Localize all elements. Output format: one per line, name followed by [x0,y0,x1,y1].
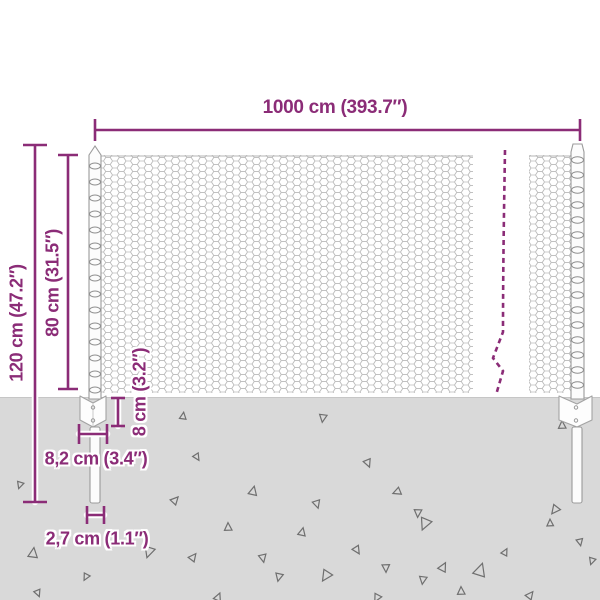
right-post-spike [572,427,582,503]
fence-dimension-diagram: 1000 cm (393.7″) 120 cm (47.2″) 80 cm (3… [0,0,600,600]
diagram-canvas [0,0,600,600]
dim-spike-width-label: 2,7 cm (1.1″) [46,529,149,550]
mesh-panel-left [95,155,473,393]
dim-total-height-label: 120 cm (47.2″) [7,264,28,382]
dim-plate-height-label: 8 cm (3.2″) [130,348,151,436]
dim-total-width [95,119,580,141]
dim-plate-width-label: 8,2 cm (3.4″) [45,449,148,470]
dim-total-width-label: 1000 cm (393.7″) [263,97,408,119]
dim-mesh-height-label: 80 cm (31.5″) [43,229,64,337]
